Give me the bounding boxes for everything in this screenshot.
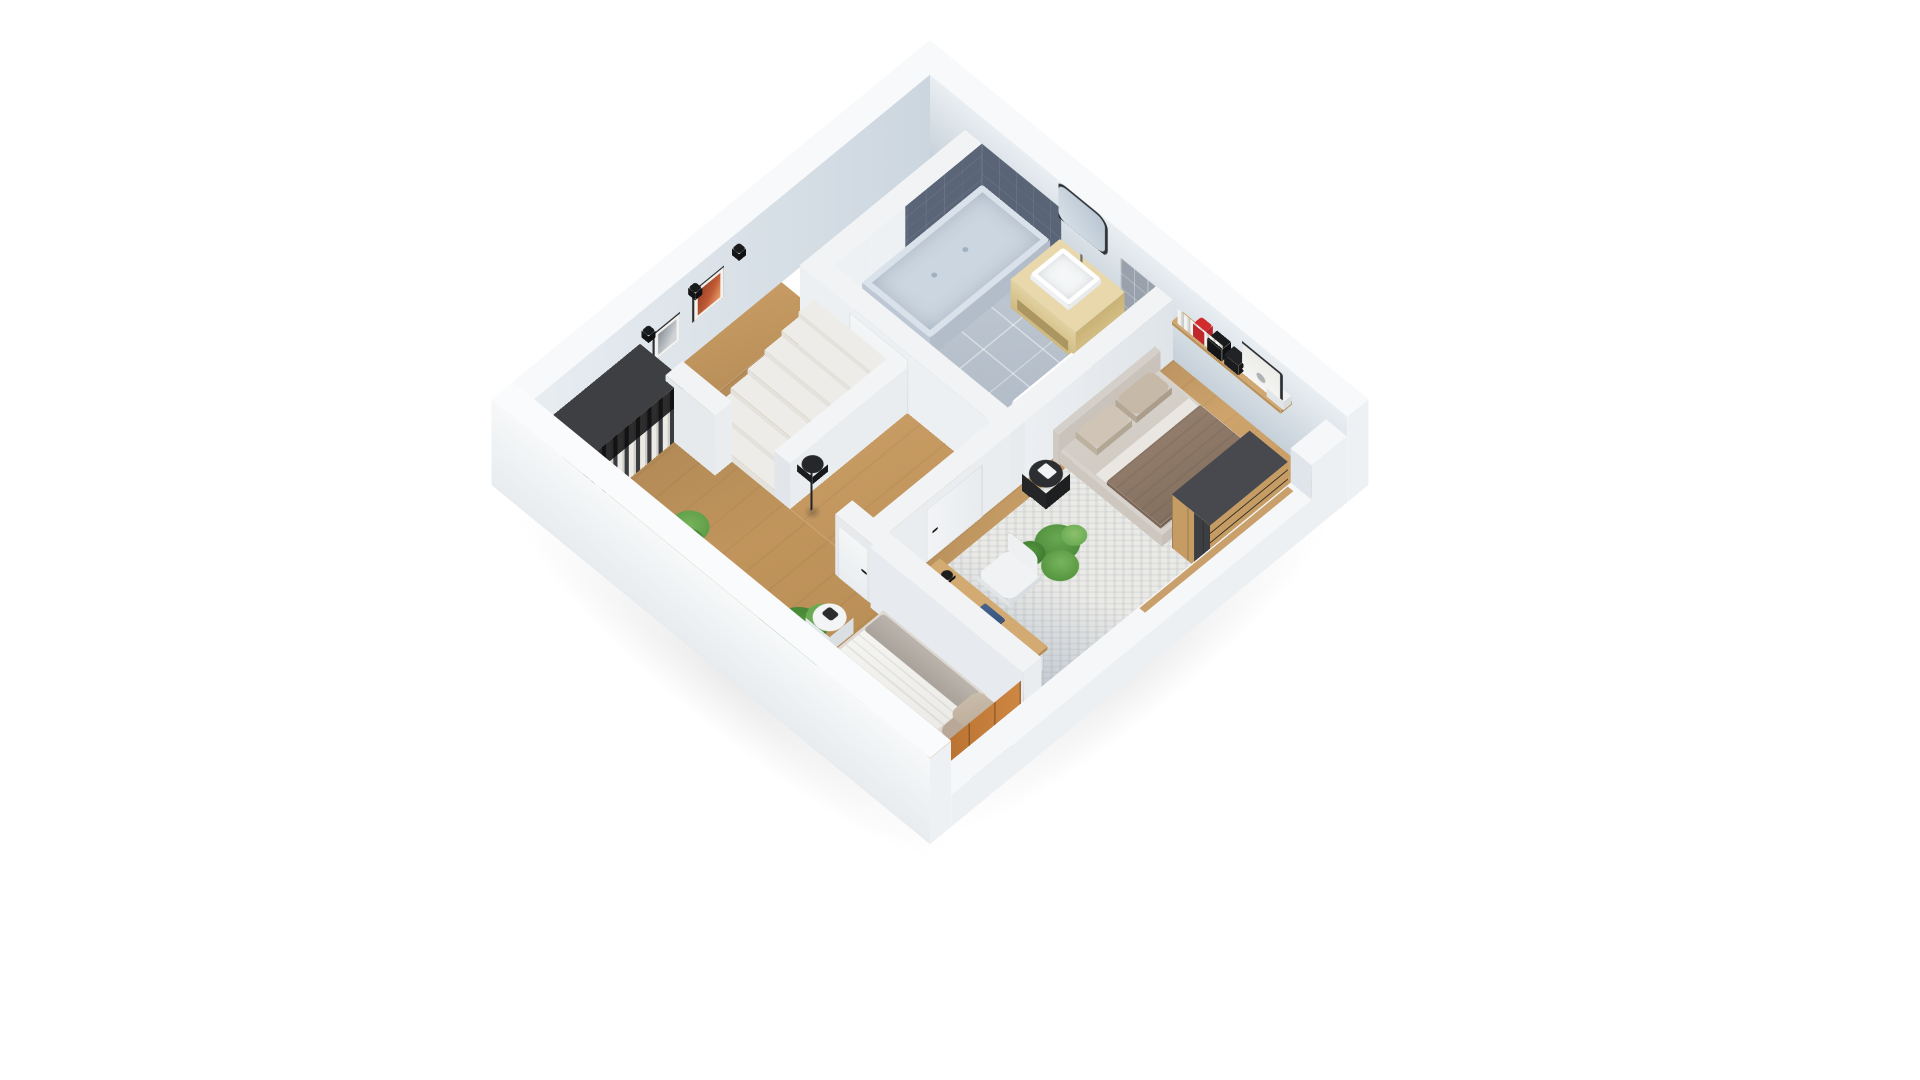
exterior-wall-sw-side-se	[930, 741, 951, 844]
floorplan-canvas	[0, 0, 1920, 1080]
exterior-wall-ne-side-se	[1347, 399, 1368, 502]
